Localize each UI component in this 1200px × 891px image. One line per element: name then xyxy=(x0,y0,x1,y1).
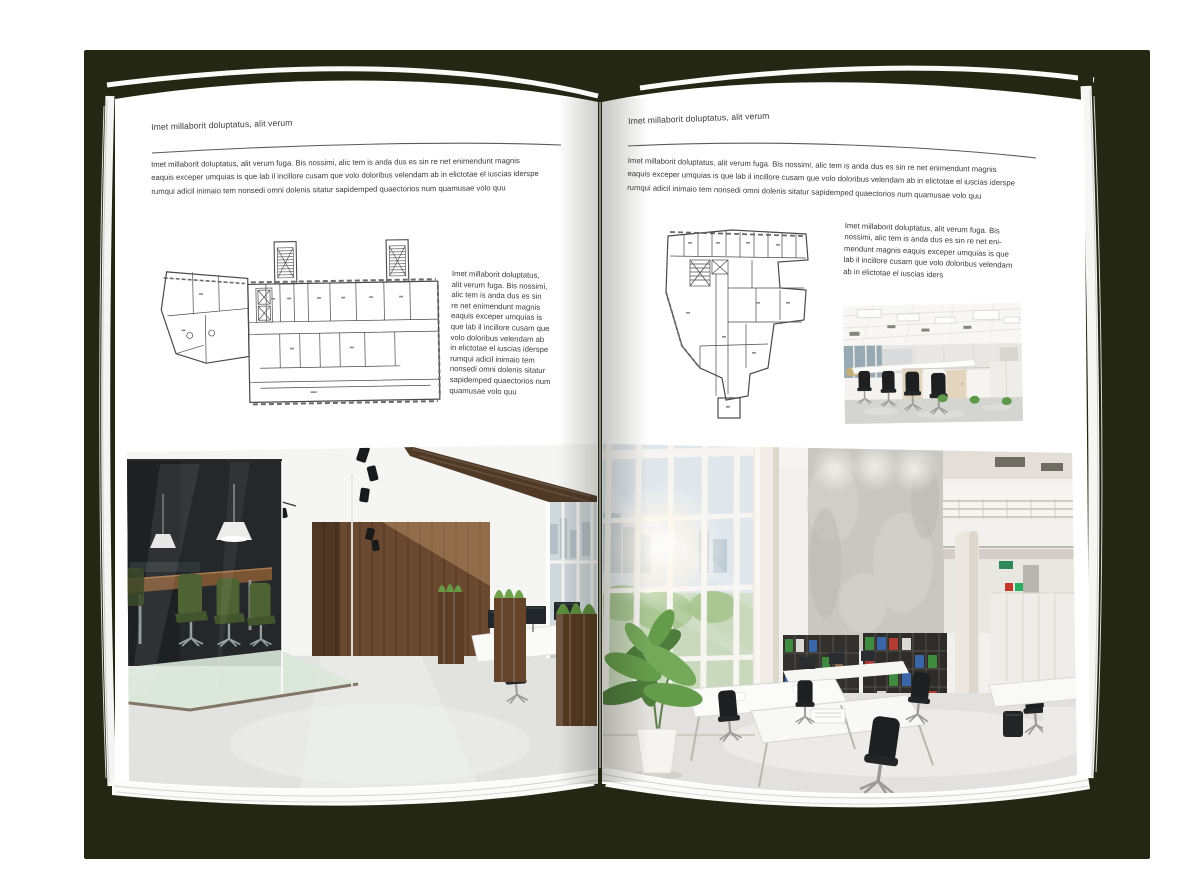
magazine-spread-mockup: Imet millaborit doluptatus, alit verum I… xyxy=(0,0,1200,891)
left-page-intro-paragraph: Imet millaborit doluptatus, alit verum f… xyxy=(151,154,539,198)
gutter-shadow-left xyxy=(558,98,598,784)
small-office-photo xyxy=(843,303,1023,424)
left-office-photo xyxy=(120,444,597,790)
right-page-caption-column: Imet millaborit doluptatus, alit verum f… xyxy=(843,220,1014,283)
right-office-photo xyxy=(595,443,1083,797)
book-graphic xyxy=(0,0,1200,891)
caption-line: quamusae volo quu xyxy=(449,386,550,399)
left-page-caption-column: Imet millaborit doluptatus, alit verum f… xyxy=(449,269,552,398)
gutter-shadow-right xyxy=(602,98,648,782)
